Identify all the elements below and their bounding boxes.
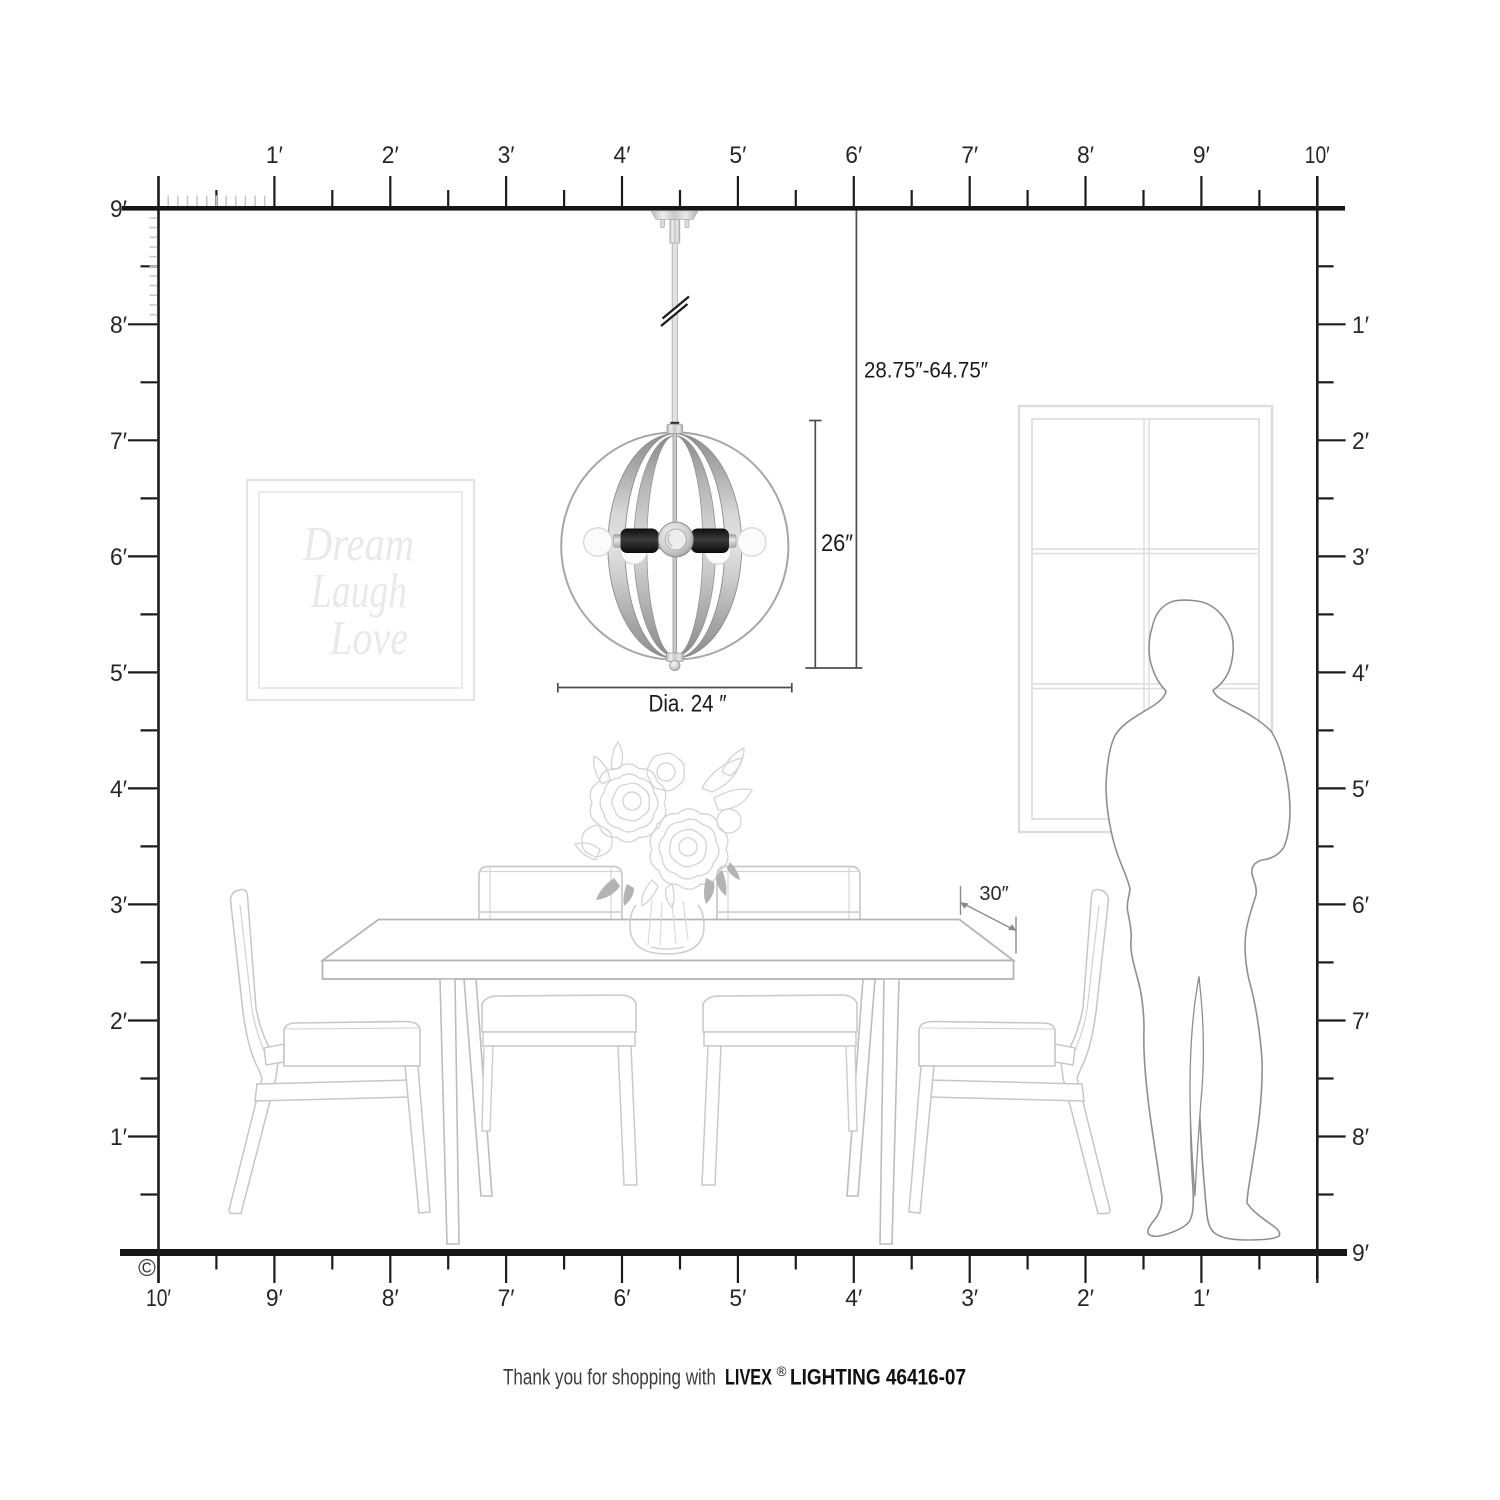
svg-text:8′: 8′ — [1352, 1124, 1369, 1151]
svg-text:26″: 26″ — [821, 530, 853, 557]
svg-text:7′: 7′ — [961, 142, 978, 169]
svg-text:LIGHTING 46416-07: LIGHTING 46416-07 — [790, 1365, 966, 1390]
svg-text:6′: 6′ — [845, 142, 862, 169]
svg-text:5′: 5′ — [1352, 776, 1369, 803]
svg-text:3′: 3′ — [110, 892, 127, 919]
svg-text:9′: 9′ — [266, 1285, 283, 1312]
svg-text:8′: 8′ — [1077, 142, 1094, 169]
svg-text:Thank you for shopping with: Thank you for shopping with — [503, 1365, 716, 1390]
svg-text:LIVEX: LIVEX — [725, 1365, 772, 1390]
svg-text:6′: 6′ — [110, 544, 127, 571]
svg-text:8′: 8′ — [382, 1285, 399, 1312]
svg-text:9′: 9′ — [110, 196, 127, 223]
svg-text:7′: 7′ — [110, 428, 127, 455]
svg-text:5′: 5′ — [729, 142, 746, 169]
svg-text:1′: 1′ — [110, 1124, 127, 1151]
svg-text:1′: 1′ — [1193, 1285, 1210, 1312]
svg-text:1′: 1′ — [1352, 312, 1369, 339]
svg-text:3′: 3′ — [961, 1285, 978, 1312]
svg-text:7′: 7′ — [498, 1285, 515, 1312]
svg-text:4′: 4′ — [845, 1285, 862, 1312]
svg-text:28.75″-64.75″: 28.75″-64.75″ — [864, 358, 988, 383]
svg-text:3′: 3′ — [1352, 544, 1369, 571]
svg-text:9′: 9′ — [1352, 1240, 1369, 1267]
svg-text:4′: 4′ — [614, 142, 631, 169]
svg-text:2′: 2′ — [110, 1008, 127, 1035]
svg-text:10′: 10′ — [146, 1285, 171, 1312]
svg-text:2′: 2′ — [1352, 428, 1369, 455]
svg-text:®: ® — [777, 1364, 787, 1379]
svg-text:2′: 2′ — [1077, 1285, 1094, 1312]
svg-text:2′: 2′ — [382, 142, 399, 169]
svg-text:©: © — [138, 1255, 156, 1282]
svg-text:30″: 30″ — [979, 883, 1008, 905]
svg-text:4′: 4′ — [110, 776, 127, 803]
svg-text:6′: 6′ — [1352, 892, 1369, 919]
svg-text:3′: 3′ — [498, 142, 515, 169]
svg-text:5′: 5′ — [110, 660, 127, 687]
svg-text:9′: 9′ — [1193, 142, 1210, 169]
svg-text:1′: 1′ — [266, 142, 283, 169]
svg-text:6′: 6′ — [614, 1285, 631, 1312]
svg-text:5′: 5′ — [729, 1285, 746, 1312]
svg-text:4′: 4′ — [1352, 660, 1369, 687]
svg-text:10′: 10′ — [1305, 142, 1330, 169]
svg-text:Dia. 24 ″: Dia. 24 ″ — [649, 691, 727, 718]
svg-text:7′: 7′ — [1352, 1008, 1369, 1035]
svg-text:8′: 8′ — [110, 312, 127, 339]
svg-text:Love: Love — [329, 610, 408, 665]
